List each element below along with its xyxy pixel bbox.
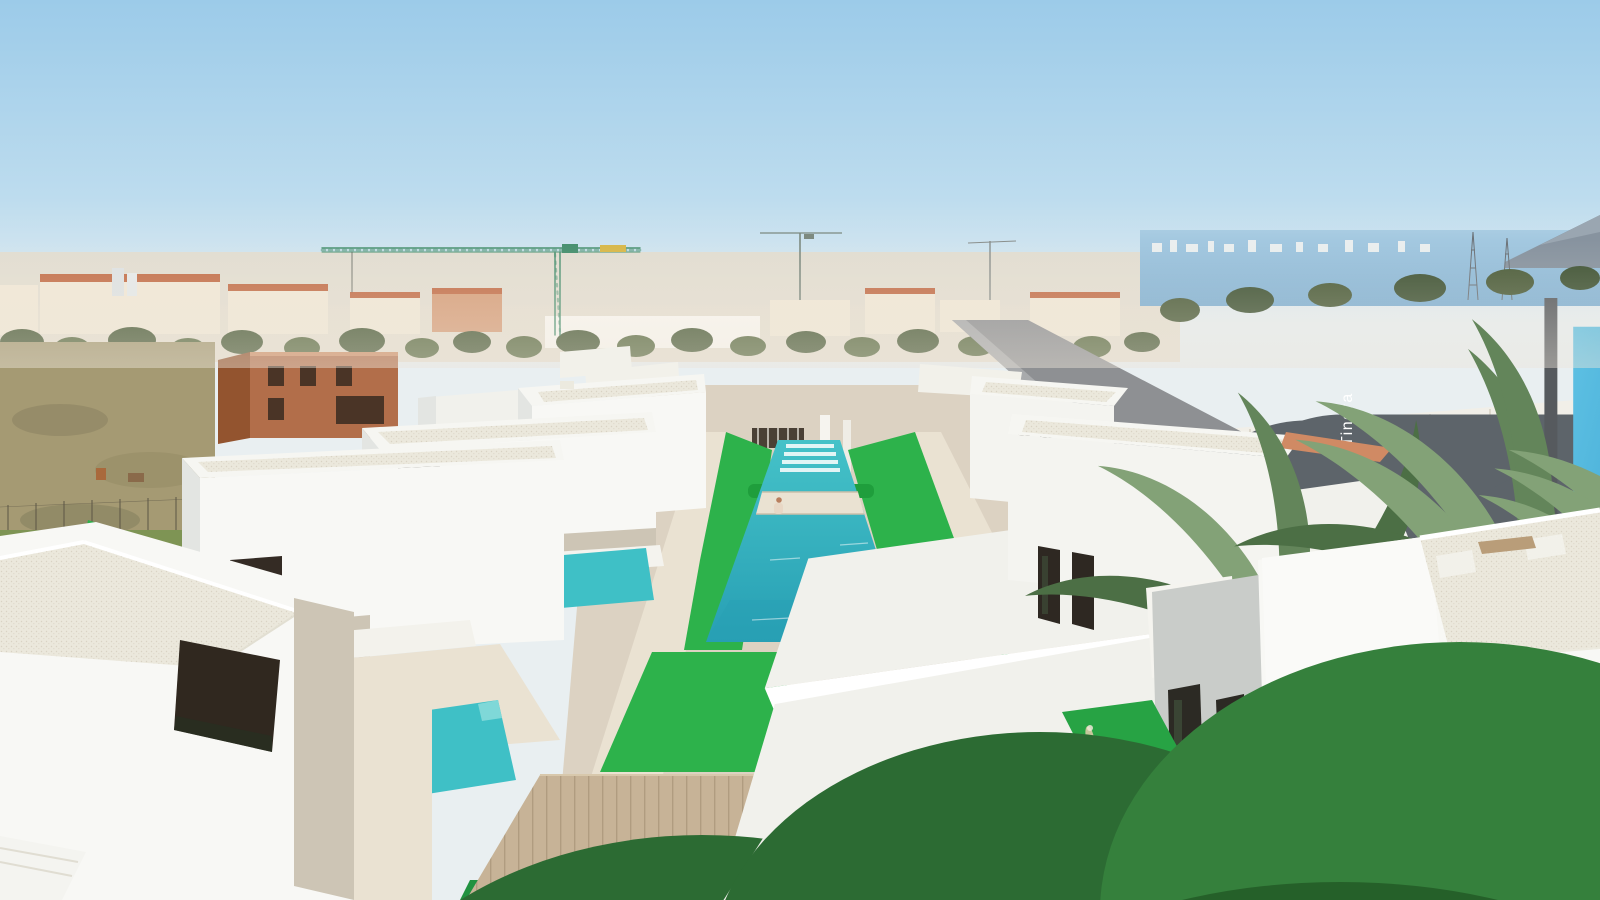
stone-side-band <box>294 598 354 900</box>
playground-structure <box>96 468 106 480</box>
aerial-villa-render: Tindra <box>0 0 1600 900</box>
playground-structure <box>128 473 144 482</box>
scene-canvas: Tindra <box>0 0 1600 900</box>
pool-bridge <box>756 492 864 514</box>
roof-unit <box>560 381 574 389</box>
side-terrace <box>354 680 432 900</box>
atmospheric-haze <box>0 240 1600 368</box>
